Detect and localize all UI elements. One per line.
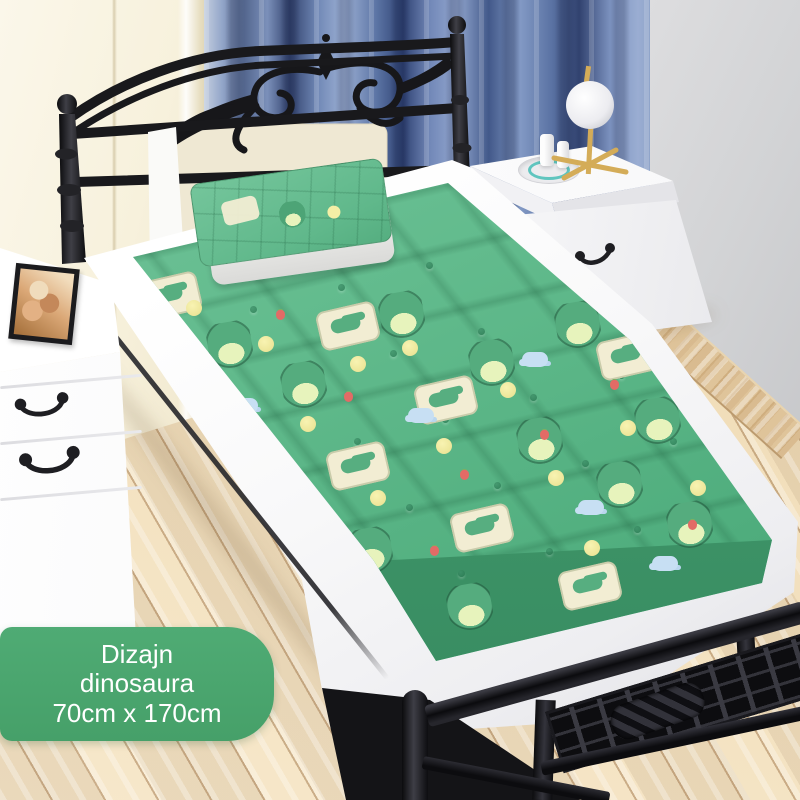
pom-motif xyxy=(500,382,516,398)
pom-motif xyxy=(402,340,418,356)
berry-motif xyxy=(610,380,619,390)
pom-motif xyxy=(436,438,452,454)
label-line-1: Dizajn xyxy=(101,640,173,670)
tuft-button xyxy=(530,394,537,401)
photo-picture xyxy=(14,268,75,339)
tuft-button xyxy=(250,306,257,313)
pom-motif xyxy=(300,416,316,432)
pom-motif xyxy=(350,356,366,372)
tuft-button xyxy=(634,526,641,533)
photo-frame xyxy=(8,263,80,345)
lamp-globe xyxy=(566,81,614,129)
tuft-button xyxy=(338,284,345,291)
pom-motif xyxy=(690,480,706,496)
pom-motif xyxy=(327,205,342,220)
tuft-button xyxy=(426,262,433,269)
bedroom-product-scene: Dizajn dinosaura 70cm x 170cm xyxy=(0,0,800,800)
pillow-motif xyxy=(220,195,261,227)
berry-motif xyxy=(460,470,469,480)
berry-motif xyxy=(430,546,439,556)
cloud-motif xyxy=(652,556,678,571)
pom-motif xyxy=(186,300,202,316)
tuft-button xyxy=(458,570,465,577)
berry-motif xyxy=(344,392,353,402)
headboard-post-right xyxy=(448,16,472,178)
left-nightstand-handle-top xyxy=(11,388,75,430)
label-line-2: dinosaura xyxy=(80,669,194,699)
pom-motif xyxy=(370,490,386,506)
tuft-button xyxy=(390,350,397,357)
dinosaur-motif xyxy=(514,415,566,470)
globe-table-lamp xyxy=(538,58,642,184)
cloud-motif xyxy=(522,352,548,367)
product-size-label: Dizajn dinosaura 70cm x 170cm xyxy=(0,627,274,741)
cloud-motif xyxy=(578,500,604,515)
tuft-button xyxy=(582,460,589,467)
tuft-button xyxy=(494,482,501,489)
dinosaur-motif xyxy=(278,359,330,414)
label-line-3: 70cm x 170cm xyxy=(52,699,221,729)
pom-motif xyxy=(258,336,274,352)
tuft-button xyxy=(478,328,485,335)
left-nightstand-handle-bottom xyxy=(15,442,88,489)
pom-motif xyxy=(584,540,600,556)
dinosaur-motif xyxy=(278,200,308,231)
berry-motif xyxy=(276,310,285,320)
dinosaur-motif xyxy=(376,289,428,344)
pom-motif xyxy=(620,420,636,436)
pom-motif xyxy=(548,470,564,486)
cloud-motif xyxy=(408,408,434,423)
tuft-button xyxy=(546,548,553,555)
tuft-button xyxy=(406,504,413,511)
berry-motif xyxy=(540,430,549,440)
dinosaur-motif xyxy=(444,581,496,636)
berry-motif xyxy=(688,520,697,530)
